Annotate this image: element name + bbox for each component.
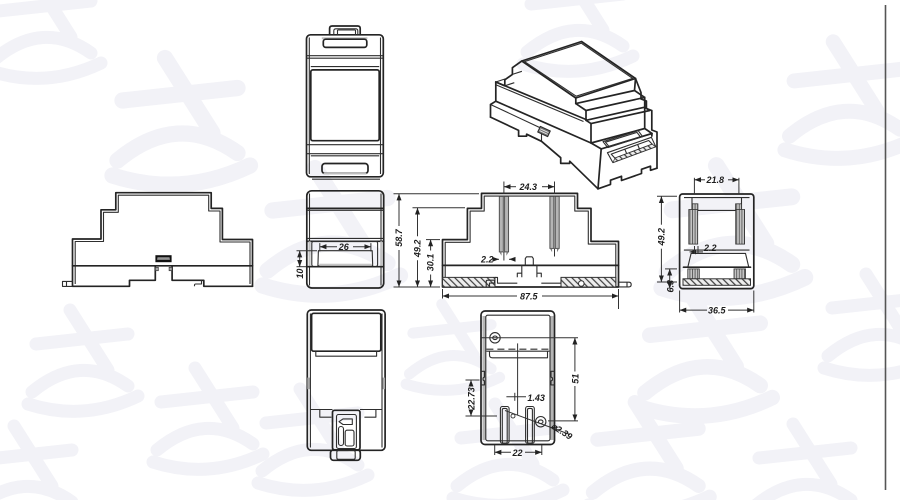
svg-text:30.1: 30.1 — [426, 254, 436, 272]
svg-text:2.2: 2.2 — [703, 243, 717, 253]
svg-text:26: 26 — [338, 242, 350, 252]
svg-text:87.5: 87.5 — [520, 291, 539, 301]
svg-text:2.2: 2.2 — [480, 255, 494, 265]
svg-text:6.3: 6.3 — [665, 280, 675, 293]
svg-text:1.43: 1.43 — [527, 393, 545, 403]
svg-text:51: 51 — [570, 374, 580, 384]
svg-text:10: 10 — [295, 269, 305, 279]
svg-text:49.2: 49.2 — [412, 240, 422, 259]
svg-text:22.73: 22.73 — [467, 387, 477, 411]
svg-text:49.2: 49.2 — [656, 228, 666, 247]
svg-text:36.5: 36.5 — [708, 306, 727, 316]
svg-text:58.7: 58.7 — [394, 228, 404, 247]
svg-text:24.3: 24.3 — [519, 182, 538, 192]
svg-text:22: 22 — [512, 448, 523, 458]
svg-text:21.8: 21.8 — [706, 175, 725, 185]
